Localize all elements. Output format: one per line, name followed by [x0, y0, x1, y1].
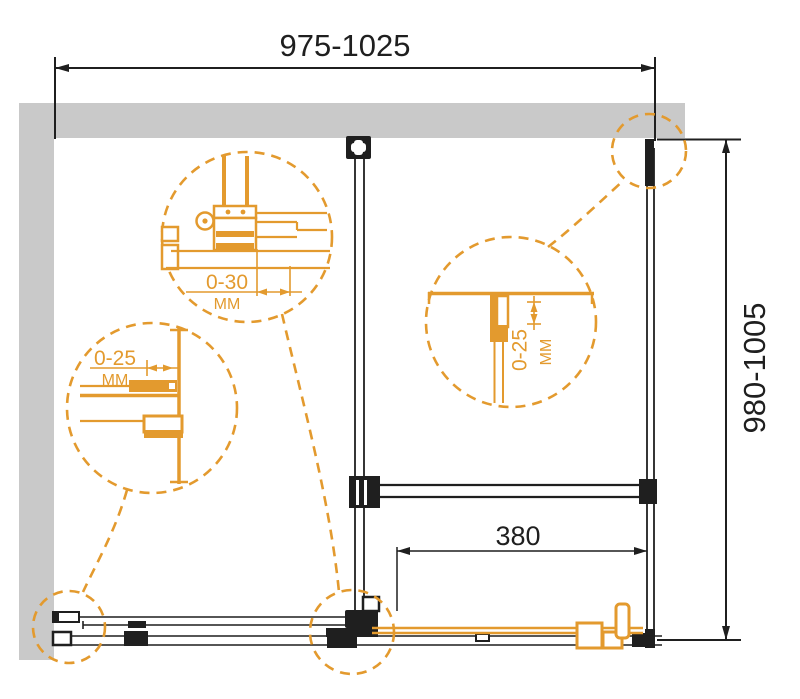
- carriage-band: [216, 243, 254, 249]
- arrowhead: [147, 365, 157, 372]
- panel-bracket: [124, 631, 148, 646]
- left-profile-adjust-unit: ММ: [102, 372, 129, 389]
- leader-line: [83, 490, 127, 592]
- arrowhead: [163, 365, 173, 372]
- stabilizer-bar: [349, 476, 657, 508]
- arrowhead: [397, 547, 410, 555]
- arrowhead: [531, 314, 538, 324]
- leader-line: [548, 180, 624, 247]
- detail-right-wall-profile: 0-25 ММ: [428, 292, 594, 403]
- right-profile-adjust-value: 0-25: [509, 329, 532, 371]
- left-wall: [19, 138, 54, 660]
- roller-axle: [202, 218, 207, 223]
- center-junction-block: [327, 637, 357, 648]
- door-roller-carriage: [577, 623, 602, 648]
- carriage-top-bar: [214, 206, 256, 218]
- right-glass-panel: [645, 139, 655, 648]
- arrowhead: [257, 289, 267, 296]
- top-wall-profile: [645, 139, 654, 186]
- arrowhead: [722, 626, 730, 640]
- left-profile-adjust-value: 0-25: [94, 347, 136, 370]
- center-junction-block: [345, 610, 378, 628]
- detail-circle-right-profile: [426, 237, 596, 407]
- arrowhead: [634, 547, 647, 555]
- bar-wall-clamp-right: [639, 479, 657, 504]
- profile-body: [144, 416, 182, 432]
- shower-enclosure-drawing: 975-1025 980-1005 380: [0, 0, 800, 699]
- left-wall-profile-edge: [53, 612, 59, 622]
- door-travel-dimension: 380: [397, 521, 647, 611]
- track-stopper: [476, 634, 489, 641]
- door-travel-label: 380: [495, 521, 540, 551]
- profile-body: [495, 325, 508, 342]
- arrowhead: [722, 140, 730, 154]
- sliding-door: [372, 604, 643, 648]
- drawing-canvas: 975-1025 980-1005 380: [0, 0, 800, 699]
- detail-roller-carriage: 0-30 ММ: [162, 156, 330, 313]
- left-wall-profile: [53, 632, 71, 645]
- top-wall: [19, 103, 685, 138]
- profile-notch: [169, 383, 175, 389]
- center-junction-block: [326, 628, 378, 637]
- arrowhead: [55, 64, 69, 72]
- arrowhead: [531, 302, 538, 312]
- screw-head: [226, 210, 231, 215]
- clamp-slot: [364, 480, 367, 505]
- door-handle: [616, 604, 629, 638]
- rail-end-cap: [162, 227, 178, 241]
- profile-body: [497, 296, 508, 327]
- detail-circle-left-profile: [67, 323, 237, 493]
- profile-body: [144, 430, 183, 438]
- carriage-band: [216, 231, 254, 237]
- arrowhead: [641, 64, 655, 72]
- panel-bracket: [128, 621, 146, 628]
- rail-end-cap: [162, 245, 178, 269]
- arrowhead: [280, 289, 290, 296]
- leader-line: [282, 314, 339, 592]
- roller-adjust-value: 0-30: [206, 271, 248, 294]
- clamp-slot: [356, 480, 359, 505]
- depth-dimension-label: 980-1005: [737, 302, 772, 433]
- right-end-block: [632, 633, 646, 647]
- bottom-track: [53, 597, 662, 648]
- center-glass-panel: [346, 136, 371, 611]
- bracket-star-cutout: [351, 143, 366, 152]
- screw-head: [241, 210, 246, 215]
- roller-adjust-unit: ММ: [214, 296, 241, 313]
- detail-left-wall-profile: 0-25 ММ: [80, 328, 188, 484]
- depth-dimension: 980-1005: [657, 140, 772, 641]
- width-dimension-label: 975-1025: [279, 28, 410, 63]
- right-profile-adjust-unit: ММ: [538, 339, 555, 366]
